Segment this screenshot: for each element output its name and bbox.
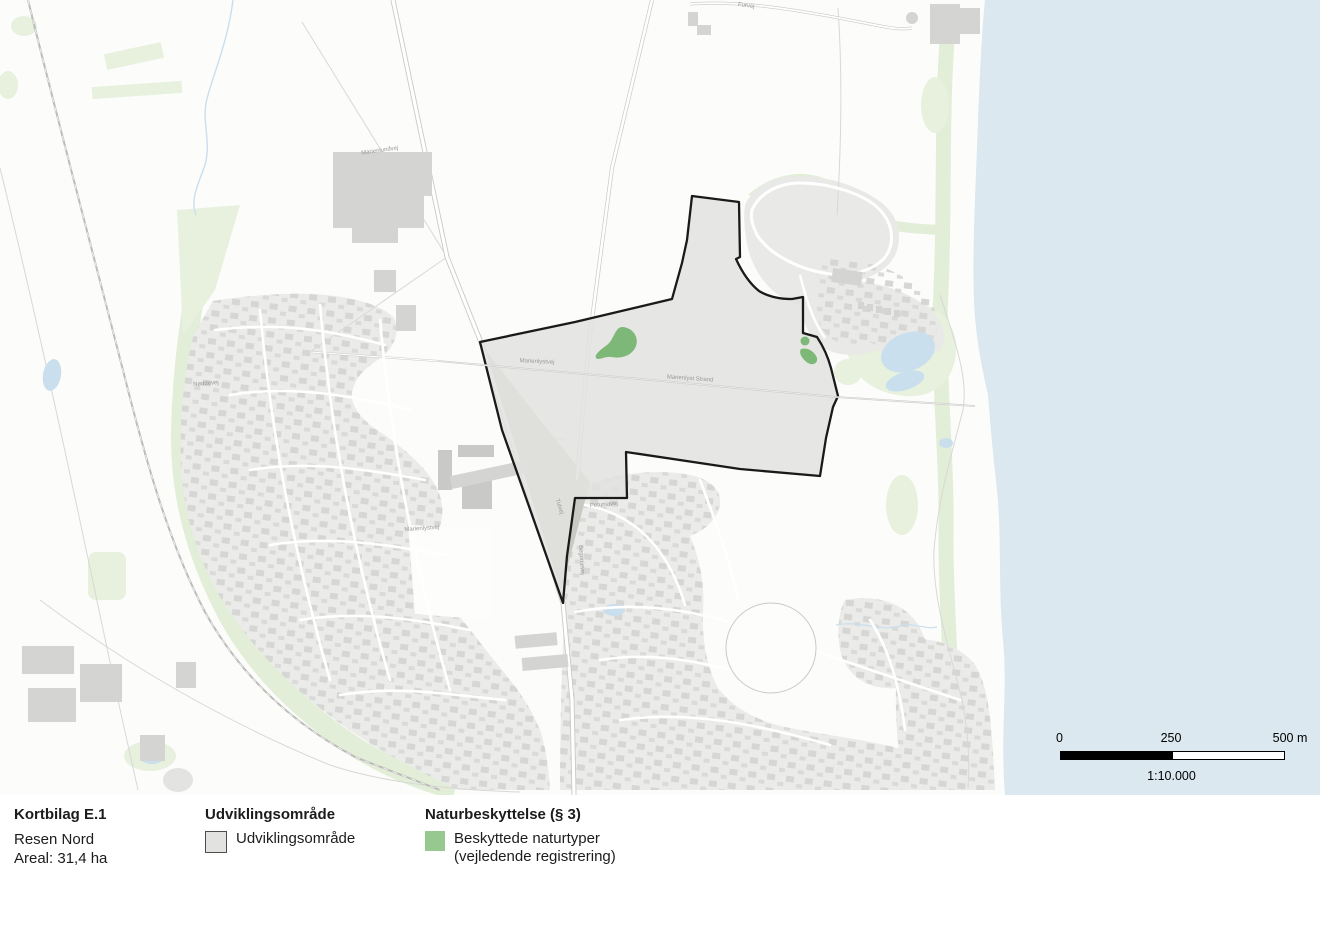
scale-bar-white-segment	[1173, 752, 1285, 759]
map-title-block: Kortbilag E.1 Resen Nord Areal: 31,4 ha	[14, 805, 107, 869]
legend-group-nature: Naturbeskyttelse (§ 3) Beskyttede naturt…	[425, 805, 616, 867]
legend-nature-label-line1: Beskyttede naturtyper	[454, 830, 600, 847]
map-title: Kortbilag E.1	[14, 805, 107, 825]
legend-group-development: Udviklingsområde Udviklingsområde	[205, 805, 355, 853]
scale-tick-250: 250	[1161, 731, 1182, 745]
map-area-value: Areal: 31,4 ha	[14, 849, 107, 869]
legend-nature-label-line2: (vejledende registrering)	[454, 848, 616, 865]
legend-nature-header: Naturbeskyttelse (§ 3)	[425, 805, 616, 825]
scale-bar-black-segment	[1061, 752, 1173, 759]
nature-swatch	[425, 831, 445, 851]
scale-ratio: 1:10.000	[1060, 769, 1283, 783]
development-swatch	[205, 831, 227, 853]
map-document: FurvejMarienlundvejMarienlystvejMarienly…	[0, 0, 1320, 933]
scale-bar: 0 250 500 m 1:10.000	[1050, 731, 1310, 783]
map-subtitle: Resen Nord	[14, 830, 107, 850]
sea	[973, 0, 1320, 795]
scale-tick-500: 500 m	[1273, 731, 1308, 745]
map-canvas: FurvejMarienlundvejMarienlystvejMarienly…	[0, 0, 1320, 795]
sports-field-circle	[726, 603, 816, 693]
legend-development-label: Udviklingsområde	[236, 830, 355, 849]
nature-patch	[801, 337, 810, 346]
legend-development-header: Udviklingsområde	[205, 805, 355, 825]
scale-tick-0: 0	[1056, 731, 1063, 745]
scale-bar-graphic	[1060, 751, 1285, 760]
